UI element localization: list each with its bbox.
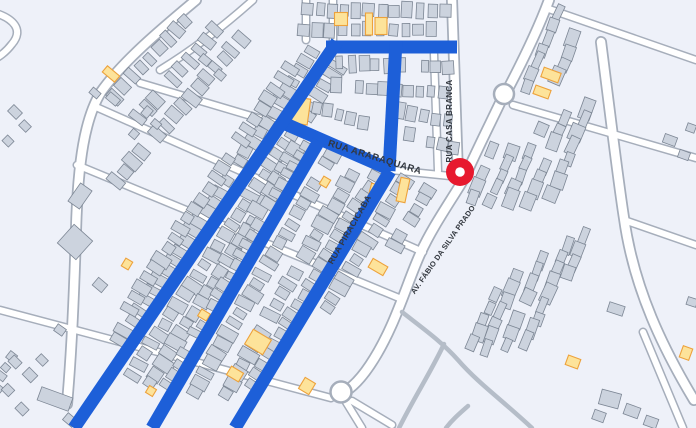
building [316, 3, 325, 16]
building [355, 80, 363, 93]
map-viewport[interactable]: RUA ARARAQUARARUA CASA BRANCARUA PIRACIC… [0, 0, 696, 428]
building [301, 3, 313, 16]
map-canvas[interactable]: RUA ARARAQUARARUA CASA BRANCARUA PIRACIC… [0, 0, 696, 428]
location-marker[interactable] [446, 158, 474, 186]
building [357, 115, 369, 130]
building [366, 83, 378, 94]
building [322, 103, 334, 117]
marker-inner-hole [455, 167, 465, 177]
building [426, 137, 435, 148]
building [421, 60, 428, 72]
building [416, 3, 424, 19]
route-top-vertical [389, 41, 396, 171]
building [401, 1, 413, 18]
building [330, 77, 342, 93]
building [388, 24, 398, 36]
building [427, 85, 435, 97]
building [338, 25, 347, 36]
building [344, 111, 356, 126]
building [426, 21, 436, 36]
building [440, 4, 452, 17]
landmark-building [375, 18, 387, 35]
building [312, 23, 324, 38]
building [403, 85, 414, 97]
roundabout [331, 382, 352, 403]
building [348, 55, 356, 73]
building [428, 4, 438, 18]
building [419, 109, 430, 123]
building [370, 59, 379, 71]
building [430, 113, 440, 126]
roundabout [494, 84, 514, 104]
building [311, 102, 322, 115]
building [379, 4, 388, 18]
street-label-1: RUA CASA BRANCA [445, 79, 454, 162]
building [359, 55, 370, 71]
building [388, 6, 399, 18]
building [351, 24, 360, 36]
building [351, 3, 360, 19]
building [297, 24, 310, 37]
building [402, 23, 410, 36]
building [323, 23, 335, 38]
landmark-building [366, 13, 373, 35]
building [413, 24, 424, 35]
building [416, 86, 424, 97]
landmark-building [335, 13, 348, 26]
building [336, 56, 343, 69]
building [430, 61, 441, 73]
building [442, 61, 455, 75]
building [403, 127, 415, 142]
